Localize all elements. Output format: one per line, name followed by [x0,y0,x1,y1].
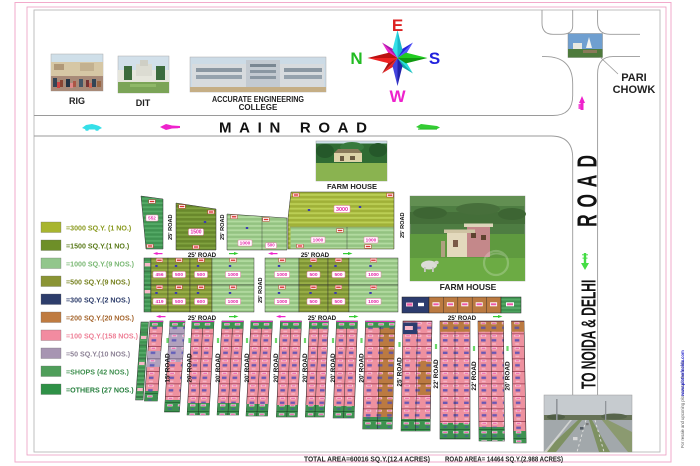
svg-text:22' ROAD: 22' ROAD [471,361,478,391]
svg-text:CHOWK: CHOWK [613,84,656,96]
svg-text:=300 SQ.Y.(2 NOS.): =300 SQ.Y.(2 NOS.) [66,297,131,305]
svg-text:D: D [571,155,602,168]
svg-text:20' ROAD: 20' ROAD [244,353,251,383]
svg-text:1000: 1000 [277,299,288,305]
svg-text:22' ROAD: 22' ROAD [433,359,440,389]
svg-text:500: 500 [334,272,342,278]
svg-text:TOTAL AREA=60016 SQ.Y.(12.4 AC: TOTAL AREA=60016 SQ.Y.(12.4 ACRES) [304,455,430,464]
svg-text:25' ROAD: 25' ROAD [168,214,174,240]
svg-text:20' ROAD: 20' ROAD [187,353,194,383]
svg-text:456: 456 [155,272,163,278]
svg-text:20' ROAD: 20' ROAD [359,353,366,383]
svg-text:500: 500 [175,272,183,278]
svg-text:1000: 1000 [228,299,239,305]
svg-text:S: S [429,49,440,68]
svg-text:20' ROAD: 20' ROAD [505,361,512,391]
svg-text:1000: 1000 [228,272,239,278]
svg-text:20' ROAD: 20' ROAD [330,353,337,383]
svg-text:25' ROAD: 25' ROAD [220,214,226,240]
svg-text:PARI: PARI [621,72,646,84]
svg-text:COLLEGE: COLLEGE [239,103,278,112]
svg-text:=1000 SQ.Y.(9 NOS.): =1000 SQ.Y.(9 NOS.) [66,261,135,269]
svg-text:1000: 1000 [313,237,324,243]
svg-text:RIG: RIG [69,96,85,106]
svg-text:FARM HOUSE: FARM HOUSE [440,282,497,292]
svg-text:500: 500 [334,299,342,305]
svg-text:1000: 1000 [277,272,288,278]
svg-text:N: N [350,49,362,68]
svg-text:=50 SQ.Y.(10 NOS.): =50 SQ.Y.(10 NOS.) [66,351,131,359]
svg-text:E: E [392,16,403,35]
svg-text:1500: 1500 [190,230,201,236]
svg-text:FARM HOUSE: FARM HOUSE [327,182,377,191]
svg-text:500: 500 [175,299,183,305]
svg-text:25' ROAD: 25' ROAD [397,357,404,387]
svg-text:500: 500 [197,272,205,278]
svg-text:600: 600 [197,299,205,305]
svg-text:500: 500 [309,299,317,305]
svg-text:25' ROAD: 25' ROAD [258,277,264,303]
svg-text:R: R [571,214,602,227]
svg-text:=500 SQ.Y.(9 NOS.): =500 SQ.Y.(9 NOS.) [66,279,131,287]
svg-text:1000: 1000 [366,237,377,243]
svg-text:TO NOIDA & DELHI: TO NOIDA & DELHI [579,280,601,389]
svg-text:25' ROAD: 25' ROAD [400,212,406,238]
svg-text:1000: 1000 [368,272,379,278]
svg-text:15' ROAD: 15' ROAD [165,353,172,383]
svg-text:20' ROAD: 20' ROAD [215,353,222,383]
svg-text:ROAD AREA= 14464 SQ.Y.(2.988 A: ROAD AREA= 14464 SQ.Y.(2.988 ACRES) [445,455,563,464]
svg-text:W: W [389,87,406,106]
svg-text:3000: 3000 [336,207,348,213]
svg-text:419: 419 [155,299,163,305]
svg-text:=SHOPS (42 NOS.): =SHOPS (42 NOS.) [66,369,130,377]
svg-text:20' ROAD: 20' ROAD [302,353,309,383]
svg-text:500: 500 [309,272,317,278]
svg-text:=1500 SQ.Y.(1 NO.): =1500 SQ.Y.(1 NO.) [66,243,130,251]
svg-text:=3000 SQ.Y. (1 NO.): =3000 SQ.Y. (1 NO.) [66,225,132,233]
svg-text:1000: 1000 [368,299,379,305]
svg-text:552: 552 [148,215,156,220]
svg-text:500: 500 [267,243,275,248]
svg-text:DIT: DIT [136,98,151,108]
svg-text:A: A [571,175,602,188]
svg-text:1000: 1000 [240,240,251,246]
svg-text:www.plotsofnoida.com: www.plotsofnoida.com [680,350,685,397]
svg-text:=OTHERS (27 NOS.): =OTHERS (27 NOS.) [66,387,134,395]
svg-text:=100 SQ.Y.(158 NOS.): =100 SQ.Y.(158 NOS.) [66,333,139,341]
svg-text:O: O [571,194,602,207]
svg-text:=200 SQ.Y.(20 NOS.): =200 SQ.Y.(20 NOS.) [66,315,135,323]
svg-text:20' ROAD: 20' ROAD [273,353,280,383]
